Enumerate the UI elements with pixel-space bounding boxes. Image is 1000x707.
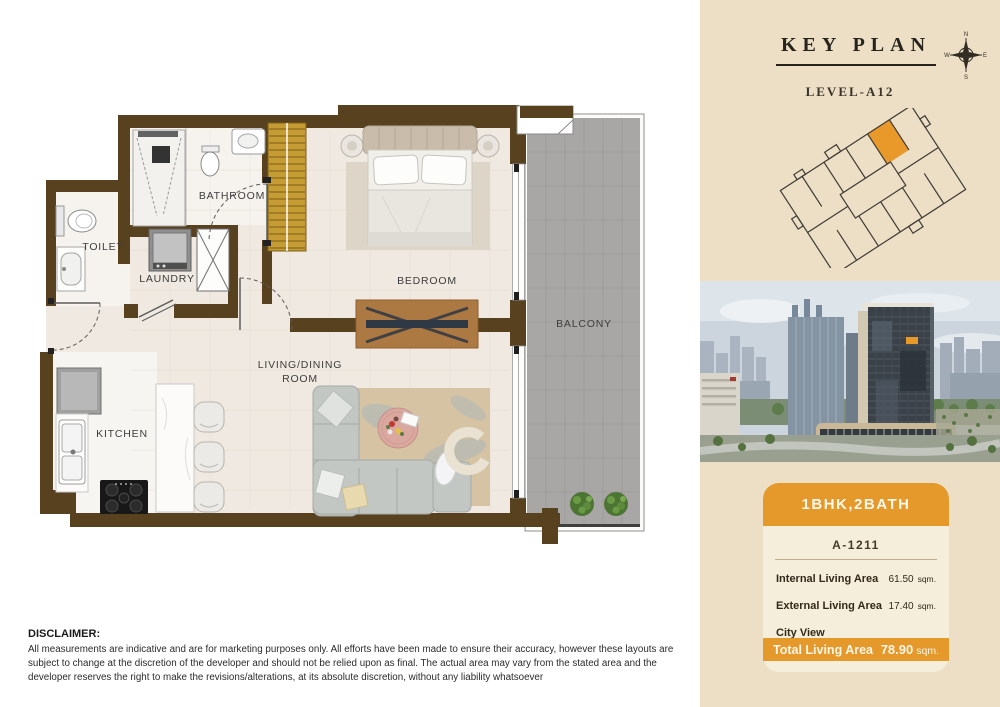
disclaimer: DISCLAIMER: All measurements are indicat…: [28, 628, 683, 685]
unit-info-card: 1BHK,2BATH A-1211 Internal Living Area 6…: [763, 483, 949, 672]
balcony-label: BALCONY: [556, 318, 612, 330]
compass-e: E: [983, 53, 987, 59]
key-plan-diagram: [758, 108, 988, 268]
unit-number: A-1211: [775, 538, 937, 560]
detail-row: External Living Area 17.40sqm.: [776, 596, 936, 614]
total-living-area-band: Total Living Area 78.90sqm.: [763, 638, 949, 661]
total-unit: sqm.: [916, 645, 939, 657]
detail-label: External Living Area: [776, 600, 882, 612]
kitchen-label: KITCHEN: [96, 428, 148, 440]
compass-icon: N E S W: [944, 30, 988, 80]
detail-value: 17.40: [889, 601, 914, 612]
bedroom-label: BEDROOM: [397, 275, 457, 287]
compass-n: N: [964, 32, 968, 38]
level-label: LEVEL-A12: [700, 84, 1000, 100]
brochure-page: BATHROOM TOILET LAUNDRY BEDROOM BALCONY …: [0, 0, 1000, 707]
disclaimer-body: All measurements are indicative and are …: [28, 643, 683, 685]
living-room-label: LIVING/DINING: [258, 359, 343, 371]
compass-s: S: [964, 75, 968, 80]
floor-plan: BATHROOM TOILET LAUNDRY BEDROOM BALCONY …: [0, 0, 700, 707]
living-room-label-2: ROOM: [282, 373, 318, 385]
bar-stool: [194, 402, 224, 512]
detail-unit: sqm.: [918, 574, 936, 584]
toilet-label: TOILET: [82, 241, 123, 253]
main-tower: [858, 303, 934, 435]
unit-location-marker: [906, 337, 918, 344]
key-plan-title: KEY PLAN: [776, 34, 936, 66]
detail-label: Internal Living Area: [776, 573, 878, 585]
ac-ledge: [517, 106, 573, 134]
living-furniture: [313, 386, 490, 516]
total-value: 78.90: [881, 642, 914, 657]
balcony-plant: [604, 492, 628, 516]
disclaimer-heading: DISCLAIMER:: [28, 628, 683, 640]
bathroom-label: BATHROOM: [199, 190, 265, 202]
detail-unit: sqm.: [918, 601, 936, 611]
laundry-label: LAUNDRY: [139, 273, 195, 285]
balcony-plant: [570, 492, 594, 516]
unit-card-body: A-1211 Internal Living Area 61.50sqm. Ex…: [763, 526, 949, 672]
building-render-image: [700, 281, 1000, 462]
unit-type-badge: 1BHK,2BATH: [763, 483, 949, 526]
compass-w: W: [944, 53, 950, 59]
unit-details: Internal Living Area 61.50sqm. External …: [763, 560, 949, 641]
key-plan-highlighted-unit: [868, 120, 909, 164]
sidebar: KEY PLAN N E S W LEVEL-A: [700, 0, 1000, 707]
detail-value: 61.50: [889, 574, 914, 585]
total-label: Total Living Area: [773, 643, 873, 657]
wardrobe: [268, 123, 306, 251]
detail-row: Internal Living Area 61.50sqm.: [776, 569, 936, 587]
